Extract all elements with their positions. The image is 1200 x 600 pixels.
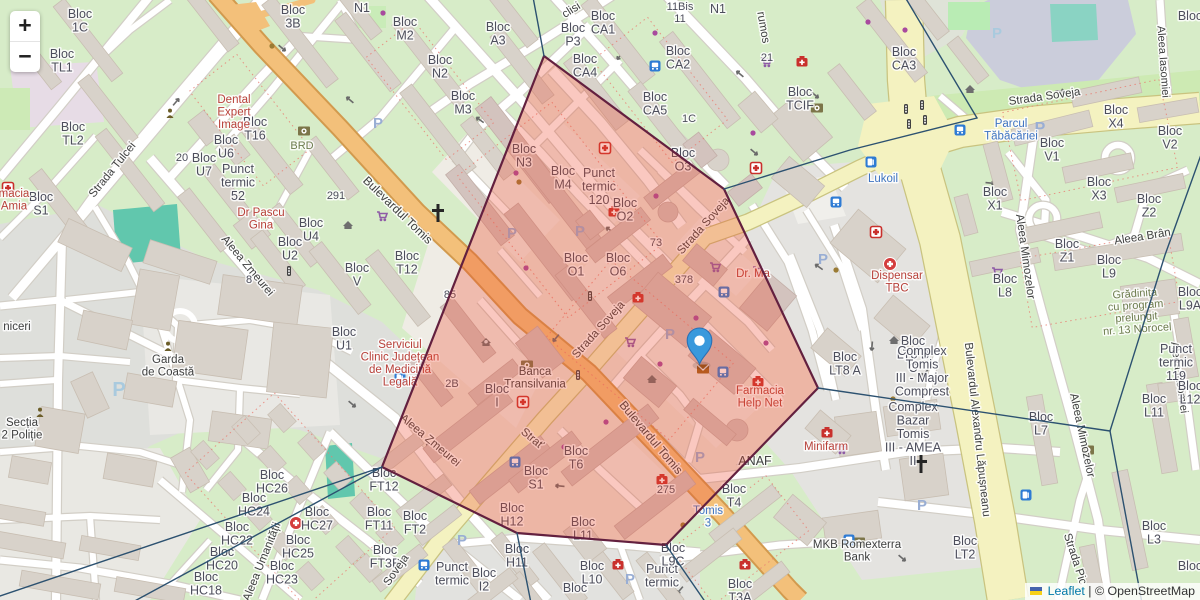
svg-text:BRD: BRD — [290, 140, 313, 152]
svg-text:BlocHC23: BlocHC23 — [266, 559, 298, 587]
svg-text:1C: 1C — [682, 113, 696, 125]
svg-text:P: P — [373, 115, 383, 132]
svg-text:BlocFT11: BlocFT11 — [365, 505, 393, 533]
svg-text:BlocHC22: BlocHC22 — [221, 520, 253, 548]
svg-text:Puncttermic: Puncttermic — [435, 560, 469, 588]
svg-text:BlocT3A: BlocT3A — [728, 577, 752, 600]
svg-text:P: P — [457, 532, 467, 549]
svg-text:BlocT12: BlocT12 — [395, 249, 419, 277]
svg-text:BlocHC20: BlocHC20 — [206, 545, 238, 573]
svg-text:Lukoil: Lukoil — [868, 173, 898, 185]
svg-text:BlocCA5: BlocCA5 — [643, 90, 667, 118]
svg-text:BlocM3: BlocM3 — [451, 89, 475, 117]
svg-text:BlocTL1: BlocTL1 — [50, 47, 74, 75]
svg-text:P: P — [818, 251, 828, 268]
svg-text:20: 20 — [176, 152, 188, 164]
svg-text:BlocLT2: BlocLT2 — [953, 534, 977, 562]
svg-text:P: P — [625, 571, 635, 588]
svg-text:8: 8 — [246, 274, 252, 286]
svg-text:BlocTCIF: BlocTCIF — [786, 85, 814, 113]
svg-text:BlocCA2: BlocCA2 — [666, 44, 690, 72]
svg-text:BlocL9A: BlocL9A — [1178, 285, 1200, 313]
svg-text:BlocL12: BlocL12 — [1178, 379, 1200, 407]
svg-text:N1: N1 — [710, 2, 726, 16]
svg-text:P: P — [112, 379, 125, 401]
svg-text:BlocHC18: BlocHC18 — [190, 570, 222, 598]
svg-text:P: P — [917, 497, 927, 514]
svg-text:DentalExpertImage: DentalExpertImage — [217, 94, 251, 131]
svg-text:P: P — [992, 25, 1002, 42]
svg-text:ComplexTomisIII - MajorCompres: ComplexTomisIII - MajorComprest — [895, 344, 950, 399]
svg-text:BlocH11: BlocH11 — [505, 542, 529, 570]
svg-text:Bloc: Bloc — [1178, 559, 1200, 573]
svg-text:niceri: niceri — [3, 321, 30, 333]
svg-text:BlocFT2: BlocFT2 — [403, 509, 427, 537]
svg-text:21: 21 — [761, 52, 773, 64]
svg-text:Bloc: Bloc — [563, 581, 587, 595]
svg-text:291: 291 — [327, 190, 345, 202]
svg-text:BlocL11: BlocL11 — [1142, 392, 1166, 420]
svg-text:BlocHC27: BlocHC27 — [301, 505, 333, 533]
svg-text:BlocTL2: BlocTL2 — [61, 120, 85, 148]
svg-text:N1: N1 — [354, 1, 370, 15]
svg-text:maciaAmia: maciaAmia — [0, 188, 30, 212]
svg-text:BlocCA1: BlocCA1 — [591, 9, 615, 37]
svg-text:BlocLT8 A: BlocLT8 A — [829, 350, 861, 378]
svg-text:BlocM2: BlocM2 — [393, 15, 417, 43]
svg-text:BlocCA3: BlocCA3 — [892, 45, 916, 73]
svg-text:Minifarm: Minifarm — [804, 441, 848, 453]
svg-text:Bloc: Bloc — [1178, 9, 1200, 23]
svg-text:Secția2 Poliție: Secția2 Poliție — [2, 417, 43, 441]
svg-text:BlocCA4: BlocCA4 — [573, 52, 597, 80]
svg-text:BlocHC25: BlocHC25 — [282, 533, 314, 561]
